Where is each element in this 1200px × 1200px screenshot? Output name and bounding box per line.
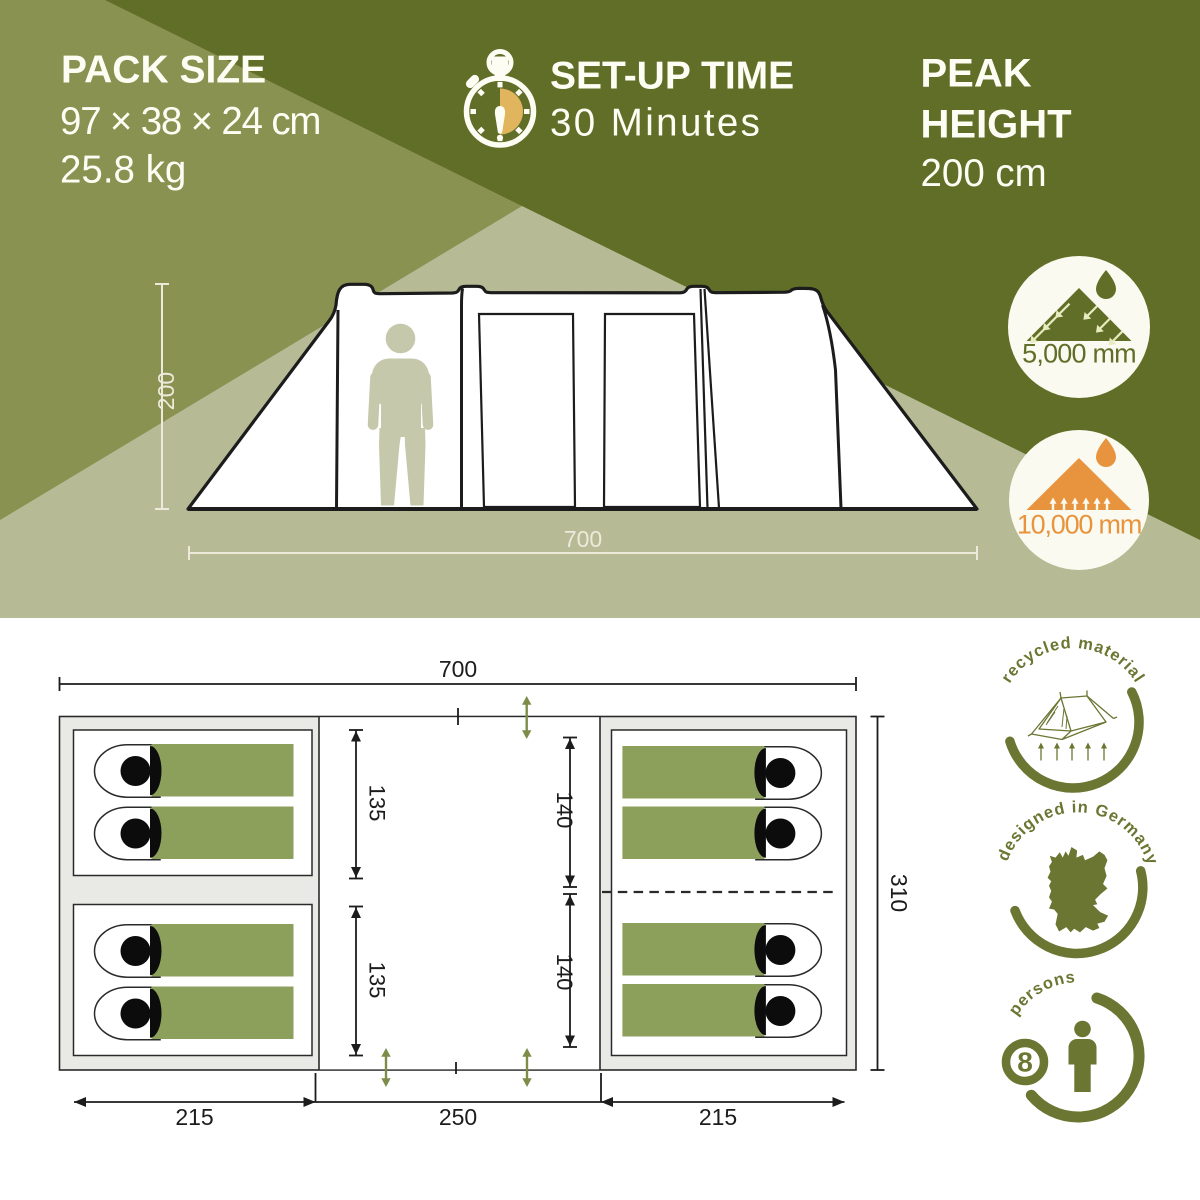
- svg-text:310: 310: [886, 874, 912, 912]
- svg-text:PEAK: PEAK: [921, 52, 1032, 96]
- svg-text:700: 700: [564, 526, 602, 552]
- svg-text:5,000 mm: 5,000 mm: [1022, 339, 1136, 369]
- svg-text:8: 8: [1017, 1047, 1033, 1078]
- svg-text:215: 215: [699, 1104, 737, 1130]
- svg-text:135: 135: [365, 785, 390, 822]
- svg-text:135: 135: [365, 962, 390, 999]
- svg-text:215: 215: [175, 1104, 213, 1130]
- svg-text:140: 140: [552, 954, 577, 991]
- svg-text:PACK SIZE: PACK SIZE: [61, 49, 266, 92]
- svg-text:200 cm: 200 cm: [921, 152, 1047, 195]
- svg-text:30 Minutes: 30 Minutes: [550, 102, 762, 145]
- svg-text:250: 250: [439, 1104, 477, 1130]
- svg-text:SET-UP TIME: SET-UP TIME: [550, 55, 794, 98]
- svg-text:25.8 kg: 25.8 kg: [60, 149, 186, 192]
- svg-text:97 × 38 × 24 cm: 97 × 38 × 24 cm: [60, 100, 320, 143]
- svg-text:10,000 mm: 10,000 mm: [1017, 510, 1141, 540]
- svg-text:200: 200: [153, 372, 179, 410]
- svg-text:700: 700: [439, 656, 477, 682]
- svg-text:140: 140: [552, 792, 577, 829]
- svg-text:HEIGHT: HEIGHT: [921, 103, 1072, 147]
